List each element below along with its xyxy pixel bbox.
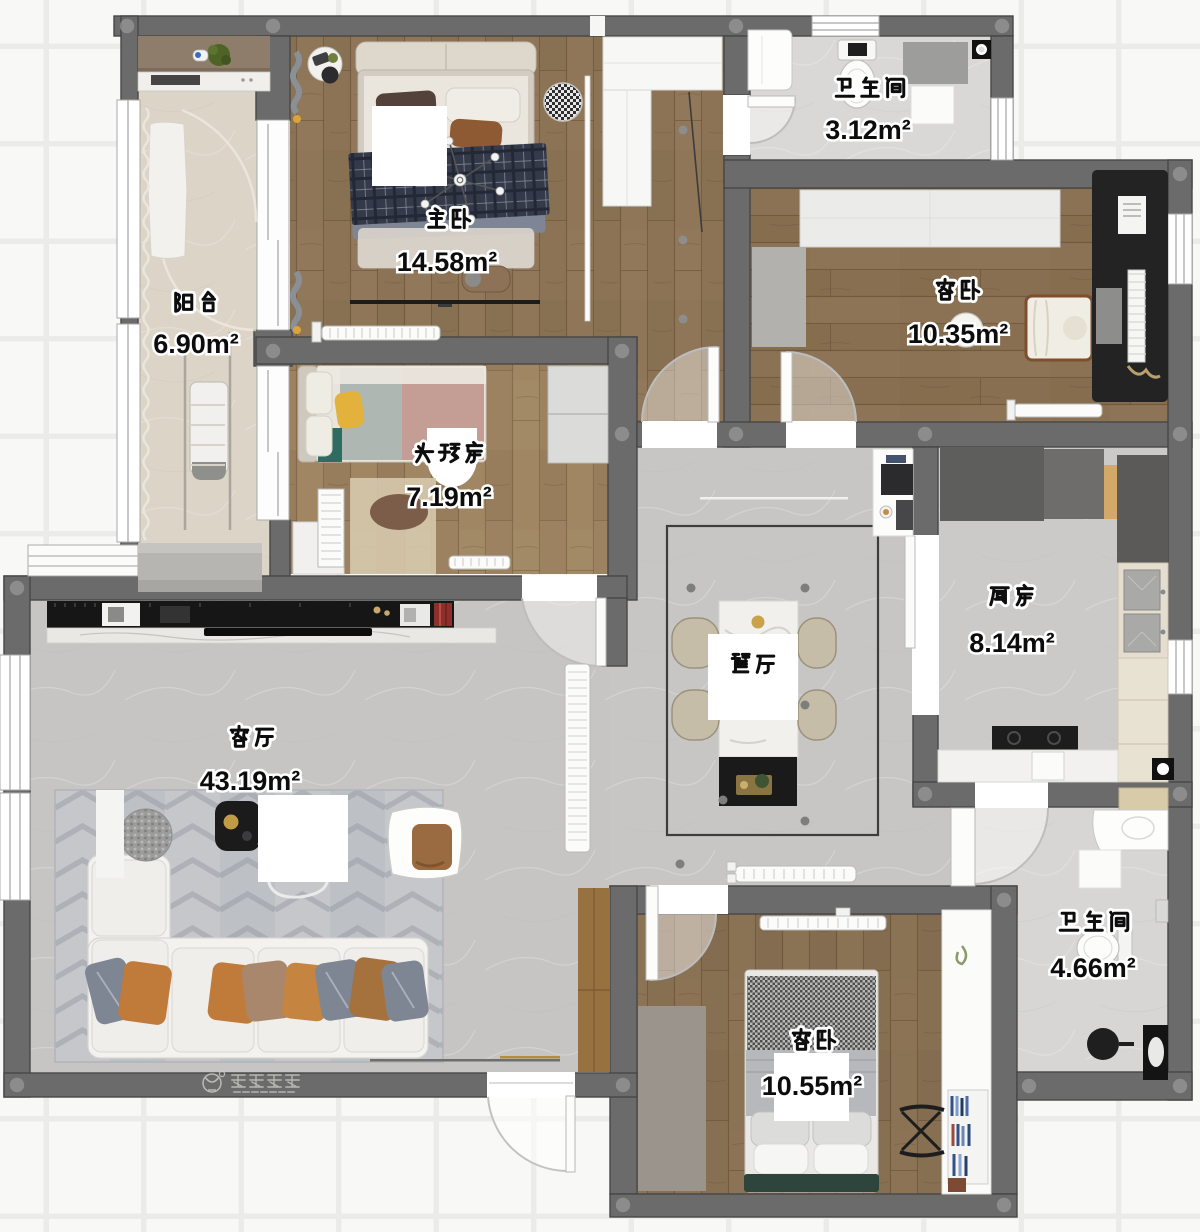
svg-text:4.66m²: 4.66m² [1050, 953, 1136, 983]
svg-text:8.14m²: 8.14m² [969, 628, 1055, 658]
svg-text:7.19m²: 7.19m² [406, 482, 492, 512]
svg-text:10.55m²: 10.55m² [762, 1071, 863, 1101]
svg-text:14.58m²: 14.58m² [397, 247, 498, 277]
svg-text:10.35m²: 10.35m² [908, 319, 1009, 349]
svg-text:43.19m²: 43.19m² [200, 766, 301, 796]
svg-text:3.12m²: 3.12m² [825, 115, 911, 145]
svg-text:6.90m²: 6.90m² [153, 329, 239, 359]
